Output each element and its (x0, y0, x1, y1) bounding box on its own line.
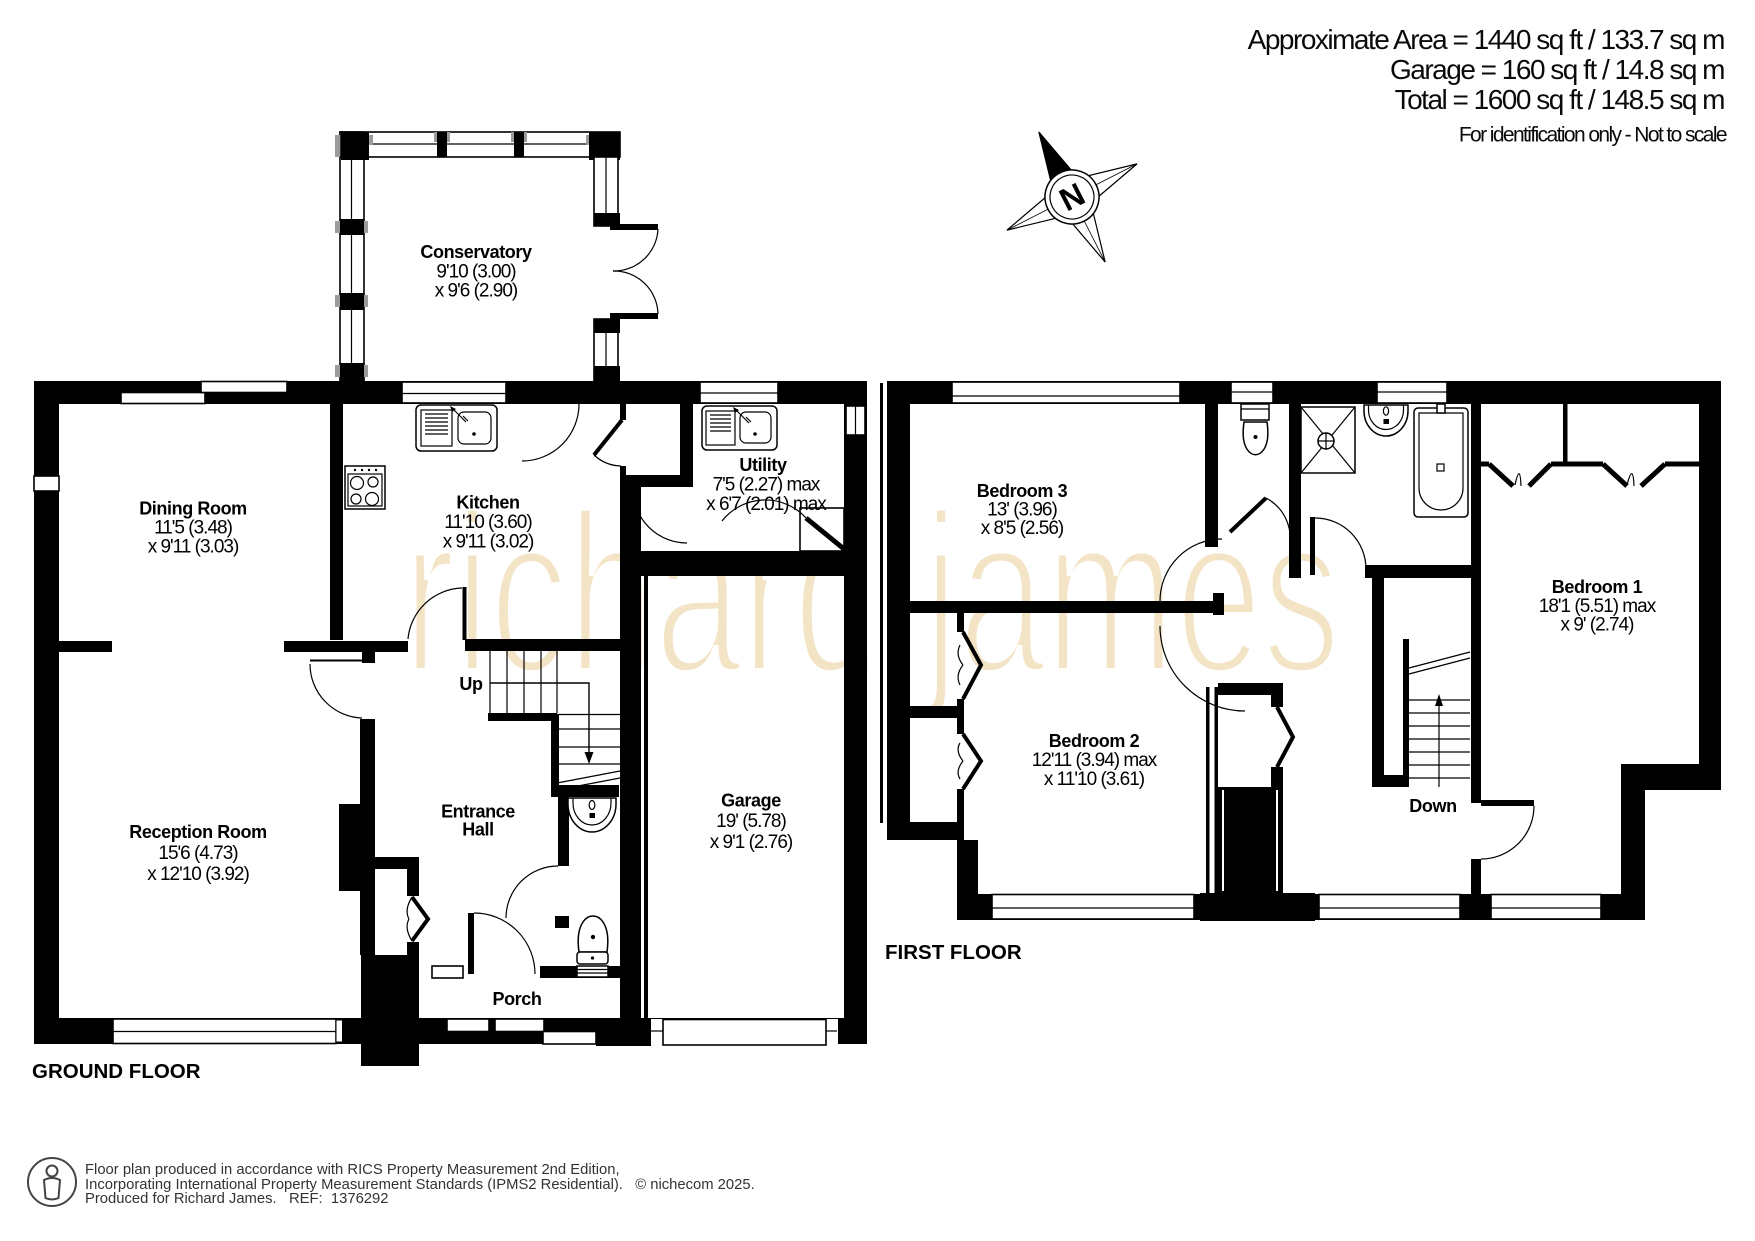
svg-text:9'10 (3.00): 9'10 (3.00) (436, 262, 516, 283)
svg-text:Entrance: Entrance (441, 802, 515, 822)
svg-text:Produced for Richard James.: Produced for Richard James. REF: 1376292 (85, 1191, 389, 1207)
svg-text:x 9'11 (3.03): x 9'11 (3.03) (148, 537, 239, 558)
svg-text:Dining Room: Dining Room (139, 499, 247, 519)
svg-text:x 9' (2.74): x 9' (2.74) (1561, 615, 1635, 636)
svg-text:FIRST FLOOR: FIRST FLOOR (885, 941, 1022, 964)
svg-text:x 12'10 (3.92): x 12'10 (3.92) (147, 864, 249, 885)
svg-text:Garage = 160 sq ft / 14.8 sq m: Garage = 160 sq ft / 14.8 sq m (1390, 54, 1724, 85)
svg-text:Bedroom 2: Bedroom 2 (1049, 731, 1140, 751)
svg-text:11'5 (3.48): 11'5 (3.48) (154, 518, 233, 539)
svg-text:15'6 (4.73): 15'6 (4.73) (158, 843, 238, 864)
svg-text:x 9'11 (3.02): x 9'11 (3.02) (443, 532, 534, 553)
svg-text:x 9'6 (2.90): x 9'6 (2.90) (435, 281, 518, 302)
svg-text:7'5 (2.27) max: 7'5 (2.27) max (713, 475, 821, 496)
svg-text:Garage: Garage (721, 791, 781, 811)
svg-text:Total = 1600 sq ft / 148.5 sq: Total = 1600 sq ft / 148.5 sq m (1395, 84, 1725, 115)
svg-text:x 6'7 (2.01) max: x 6'7 (2.01) max (706, 494, 827, 515)
svg-text:Reception Room: Reception Room (129, 822, 266, 842)
svg-text:x 9'1 (2.76): x 9'1 (2.76) (710, 832, 793, 853)
svg-text:11'10 (3.60): 11'10 (3.60) (444, 512, 532, 533)
svg-text:Down: Down (1409, 796, 1456, 816)
svg-text:Bedroom 3: Bedroom 3 (977, 481, 1068, 501)
svg-text:Conservatory: Conservatory (420, 242, 532, 262)
svg-text:x 8'5 (2.56): x 8'5 (2.56) (981, 518, 1064, 539)
svg-text:19' (5.78): 19' (5.78) (716, 811, 786, 832)
svg-text:Kitchen: Kitchen (456, 493, 519, 513)
svg-text:Hall: Hall (462, 820, 493, 840)
svg-text:x 11'10 (3.61): x 11'10 (3.61) (1044, 769, 1145, 790)
svg-text:Porch: Porch (492, 989, 541, 1009)
svg-text:Utility: Utility (739, 455, 787, 475)
svg-text:GROUND FLOOR: GROUND FLOOR (32, 1060, 201, 1083)
svg-text:Bedroom 1: Bedroom 1 (1552, 577, 1643, 597)
svg-text:Floor plan produced in accorda: Floor plan produced in accordance with R… (85, 1162, 620, 1178)
svg-text:Up: Up (459, 674, 483, 694)
svg-text:12'11 (3.94) max: 12'11 (3.94) max (1032, 750, 1158, 771)
svg-text:For identification only - Not: For identification only - Not to scale (1459, 124, 1727, 147)
svg-text:Approximate Area = 1440 sq ft: Approximate Area = 1440 sq ft / 133.7 sq… (1248, 24, 1724, 55)
